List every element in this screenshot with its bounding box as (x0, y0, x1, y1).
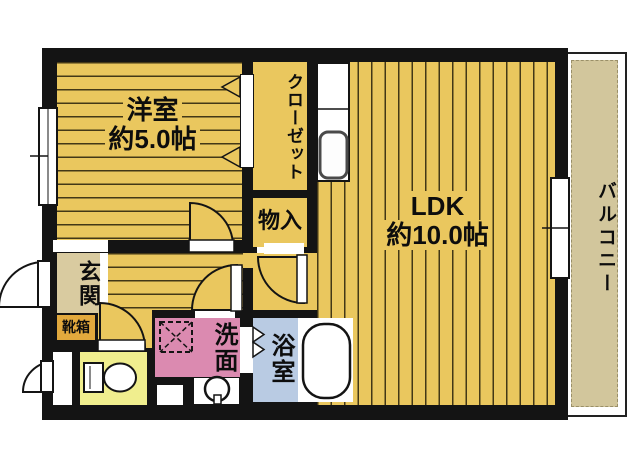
label-balcony: バルコニー (575, 158, 615, 318)
ldk-size: 約10.0帖 (383, 220, 492, 250)
opening-above-entrance (53, 240, 108, 252)
hallway-lower (98, 310, 152, 348)
bathroom-name: 浴室 (267, 333, 294, 385)
utility-recess (53, 352, 72, 405)
closet-name: クローゼット (284, 73, 303, 181)
washroom-door-opening (195, 308, 235, 318)
floor-plan: 洋室 約5.0帖 LDK 約10.0帖 クローゼット 物入 玄関 靴箱 洗面 浴… (0, 0, 640, 471)
label-storage: 物入 (250, 209, 310, 233)
shoe-box-name: 靴箱 (62, 319, 90, 335)
western-room-size: 約5.0帖 (105, 124, 199, 154)
ldk-name: LDK (408, 191, 467, 221)
label-entrance: 玄関 (57, 258, 100, 310)
entrance-name: 玄関 (76, 260, 101, 308)
ldk-door-opening (264, 243, 304, 254)
label-ldk: LDK 約10.0帖 (360, 192, 515, 249)
hallway (108, 253, 243, 310)
storage-name: 物入 (258, 208, 302, 233)
label-closet: クローゼット (258, 66, 302, 188)
kitchen-counter (316, 62, 350, 182)
entrance-step-edge (100, 253, 108, 313)
label-western-room: 洋室 約5.0帖 (75, 96, 230, 153)
label-washroom: 洗面 (202, 320, 236, 376)
washroom-recess (157, 385, 183, 405)
label-bathroom: 浴室 (259, 326, 293, 392)
entrance-door-arc (0, 262, 44, 307)
label-shoe-box: 靴箱 (55, 320, 97, 335)
room-toilet (80, 352, 147, 405)
western-room-name: 洋室 (123, 95, 181, 125)
washroom-name: 洗面 (210, 322, 237, 374)
ldk-entry-zone (243, 253, 317, 310)
washbasin-box (193, 377, 240, 405)
bathtub-zone (298, 318, 353, 402)
balcony-name: バルコニー (595, 181, 616, 296)
closet-sliding-door (240, 74, 254, 168)
wall-segment-hall (243, 268, 253, 312)
bathroom-door-opening (240, 327, 253, 373)
